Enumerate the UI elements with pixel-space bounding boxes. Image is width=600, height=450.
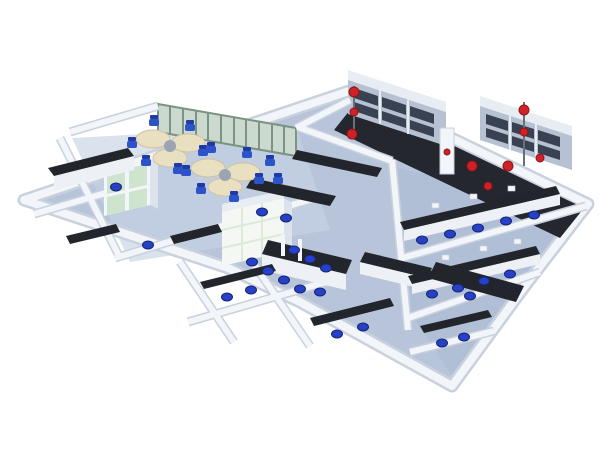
chair-seat [242, 151, 252, 158]
lab-stool [247, 258, 258, 266]
wall-cabinet-dot [514, 239, 521, 244]
lab-stool [358, 323, 369, 331]
wall-cabinet-dot [508, 186, 515, 191]
emergency-station [520, 128, 528, 136]
chair-back [274, 173, 282, 177]
chair-seat [206, 146, 216, 153]
chair-seat [141, 159, 151, 166]
lab-stool [143, 241, 154, 249]
lab-stool [505, 270, 516, 278]
lab-floorplan-render [0, 0, 600, 450]
lab-stool [279, 276, 290, 284]
lab-stool [437, 339, 448, 347]
lab-stool [111, 183, 122, 191]
chair-seat [273, 177, 283, 184]
chair-back [230, 191, 238, 195]
lab-stool [501, 217, 512, 225]
desk-hub [219, 169, 231, 181]
lab-stool [453, 284, 464, 292]
emergency-station [467, 161, 477, 171]
chair-seat [149, 119, 159, 126]
lab-stool [315, 288, 326, 296]
lab-stool [417, 236, 428, 244]
chair-back [266, 155, 274, 159]
wall-cabinet-dot [442, 255, 449, 260]
chair-seat [185, 124, 195, 131]
emergency-station [347, 129, 357, 139]
chair-back [142, 155, 150, 159]
chair-back [174, 163, 182, 167]
wall-cabinet-dot [432, 203, 439, 208]
lab-stool [321, 264, 332, 272]
chair-back [186, 120, 194, 124]
chair-seat [254, 177, 264, 184]
lab-stool [445, 230, 456, 238]
emergency-station [350, 108, 358, 116]
chair-seat [127, 141, 137, 148]
lab-stool [479, 277, 490, 285]
lab-stool [529, 211, 540, 219]
chair-back [197, 183, 205, 187]
emergency-station [444, 149, 450, 155]
wall-cabinet-dot [470, 194, 477, 199]
lab-stool [305, 255, 316, 263]
lab-stool [246, 286, 257, 294]
lab-stool [257, 208, 268, 216]
lab-stool [263, 267, 274, 275]
chair-seat [196, 187, 206, 194]
lab-stool [473, 224, 484, 232]
chair-back [199, 145, 207, 149]
chair-back [182, 165, 190, 169]
chair-back [150, 115, 158, 119]
emergency-station [484, 182, 492, 190]
chair-back [243, 147, 251, 151]
green-cabinet-side [150, 159, 158, 209]
lab-stool [427, 290, 438, 298]
lab-stool [281, 214, 292, 222]
desk-hub [164, 140, 176, 152]
chair-seat [265, 159, 275, 166]
chair-seat [229, 195, 239, 202]
chair-seat [181, 169, 191, 176]
lab-stool [295, 285, 306, 293]
lab-stool [289, 246, 300, 254]
wall-cabinet-dot [480, 246, 487, 251]
lab-stool [332, 330, 343, 338]
emergency-station [349, 87, 359, 97]
emergency-station [503, 161, 513, 171]
lab-stool [459, 333, 470, 341]
shelf-post [281, 234, 285, 256]
emergency-station [536, 154, 544, 162]
chair-back [255, 173, 263, 177]
lab-stool [222, 293, 233, 301]
emergency-station [519, 105, 529, 115]
screenshot-root [0, 0, 600, 450]
chair-back [207, 142, 215, 146]
chair-back [128, 137, 136, 141]
lab-stool [465, 292, 476, 300]
wall-segment [70, 106, 158, 132]
